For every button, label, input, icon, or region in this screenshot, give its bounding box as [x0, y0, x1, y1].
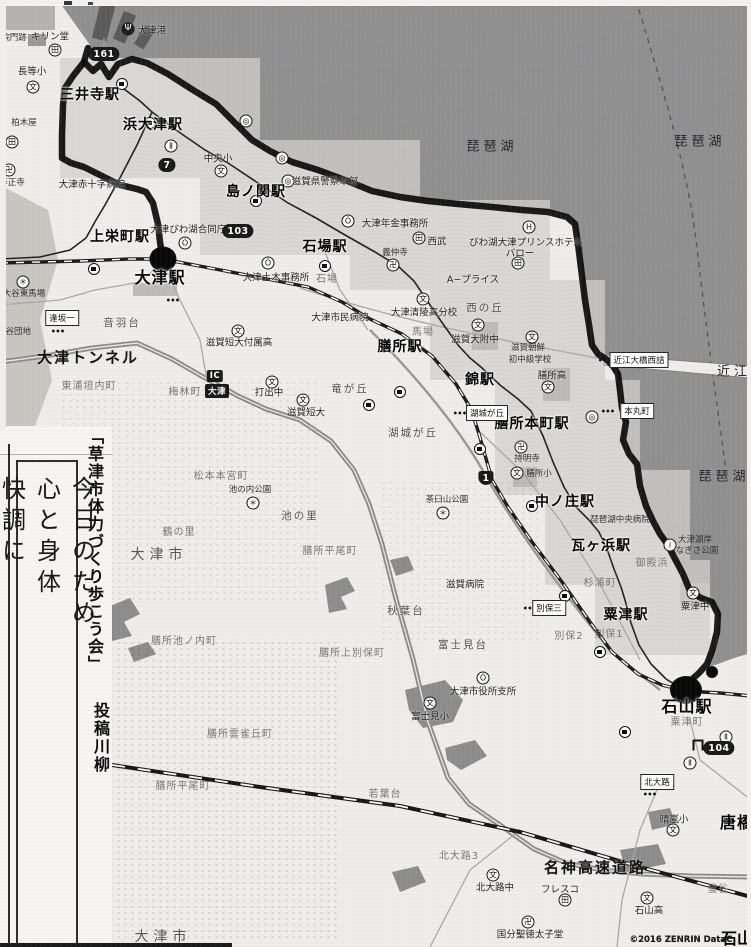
temple-icon: 卍 [387, 259, 400, 272]
route-number-badge: 104 [703, 741, 734, 755]
map-label: 北大路3 [439, 852, 479, 862]
map-label: 若葉台 [369, 790, 402, 800]
map-label: フレスコ [541, 885, 579, 895]
station-marker-icon [594, 646, 606, 658]
station-marker-icon [474, 443, 486, 455]
map-label: 持明寺 [514, 455, 540, 464]
map-label: 粟津町 [671, 718, 704, 728]
boxed-place-label: 近江大橋西詰 [609, 352, 668, 368]
gov-office-icon: Ó [342, 215, 355, 228]
map-label: 梅林町 [169, 388, 202, 398]
map-label: 杉浦町 [584, 579, 617, 589]
map-label: 富士見台 [438, 640, 488, 651]
school-icon: 文 [297, 394, 310, 407]
senryu-poem: 今日のため 心と身体 快調に [0, 476, 100, 655]
map-label: 茶臼山公園 [426, 496, 469, 505]
shrine-icon [693, 740, 704, 751]
map-label: 西の丘 [466, 303, 504, 314]
poi-icon: ◎ [240, 115, 253, 128]
map-label: 晴嵐小 [660, 815, 689, 825]
poem-line: 今日のため [65, 476, 100, 631]
school-icon: 文 [526, 331, 539, 344]
map-label: 池の内公園 [229, 486, 272, 495]
info-icon: i [664, 539, 677, 552]
map-label: 膳所池ノ内町 [151, 637, 217, 647]
school-icon: 文 [232, 325, 245, 338]
map-label: 螢谷 [707, 885, 729, 895]
temple-icon: 卍 [515, 441, 528, 454]
map-label: 松本本宮町 [194, 472, 249, 482]
map-label: 初中級学校 [509, 356, 552, 365]
boxed-place-label: 逢坂一 [45, 310, 79, 326]
station-label: 錦駅 [465, 373, 495, 387]
lake-label: 琵琶湖 [698, 471, 749, 484]
map-label: 中央小 [204, 154, 233, 164]
gov-office-icon: Ó [262, 257, 275, 270]
map-label: 大津市役所支所 [450, 687, 517, 697]
map-label: 打出中 [255, 388, 284, 398]
bus-stop-icon [166, 298, 180, 302]
poem-line: 快調に [0, 476, 30, 631]
map-label: 大津市 [131, 548, 188, 562]
map-label: 別保2 [554, 632, 583, 642]
map-label: 膳所雲雀丘町 [207, 730, 273, 740]
school-icon: 文 [472, 319, 485, 332]
map-labels-layer: 院門跡キリン堂大津港長等小柏木屋等正寺中央小大津赤十字病院大津びわ湖合同庁舎滋賀… [0, 0, 751, 947]
bus-stop-icon [453, 411, 467, 415]
school-icon: 文 [667, 824, 680, 837]
map-label: 別保1 [594, 630, 623, 640]
poi-icon: Ⅱ [165, 140, 178, 153]
station-label: 中ノ庄駅 [535, 495, 595, 509]
station-label: 石山駅 [661, 699, 712, 715]
station-label: 粟津駅 [604, 608, 649, 622]
fold-line [0, 454, 112, 455]
map-label: なぎさ公園 [676, 547, 719, 556]
map-label: 滋賀短大付属高 [206, 338, 273, 348]
school-icon: 文 [424, 697, 437, 710]
copyright-notice: ©2016 ZENRIN DataC [630, 936, 733, 945]
map-label: 滋賀大附中 [451, 335, 499, 345]
scan-edge-line [0, 943, 232, 947]
store-icon: 田 [559, 894, 572, 907]
map-label: 大津湖岸 [678, 536, 712, 545]
map-label: 石場 [316, 275, 338, 285]
map-label: 大津土木事務所 [243, 273, 310, 283]
poi-icon: Ⅱ [684, 757, 697, 770]
station-label: 三井寺駅 [60, 88, 120, 102]
store-icon: 田 [413, 232, 426, 245]
map-label: 大谷東馬場 [3, 290, 46, 299]
school-icon: 文 [27, 81, 40, 94]
map-label: 富士見小 [411, 712, 449, 722]
park-icon: ＊ [247, 497, 260, 510]
school-icon: 文 [641, 892, 654, 905]
map-label: びわ湖大津プリンスホテル [469, 238, 583, 248]
school-icon: 文 [417, 293, 430, 306]
scanned-walking-course-map-page: 院門跡キリン堂大津港長等小柏木屋等正寺中央小大津赤十字病院大津びわ湖合同庁舎滋賀… [0, 0, 751, 947]
station-marker-icon [319, 260, 331, 272]
route-number-badge: 大津 [205, 384, 229, 398]
map-label: 長等小 [18, 67, 47, 77]
poi-icon: ◎ [586, 411, 599, 424]
map-label: 東浦垣内町 [62, 382, 117, 392]
station-label: 膳所駅 [378, 340, 423, 354]
station-label: 石場駅 [303, 240, 348, 254]
map-label: 大津トンネル [37, 351, 139, 366]
route-number-badge: 103 [222, 224, 253, 238]
poem-line: 心と身体 [30, 476, 65, 631]
poem-box: 今日のため 心と身体 快調に [16, 460, 78, 947]
map-label: 滋賀朝鮮 [511, 344, 545, 353]
map-label: 滋賀病院 [446, 580, 484, 590]
station-marker-icon [394, 386, 406, 398]
gov-office-icon: Ó [477, 672, 490, 685]
scan-mark [64, 1, 72, 5]
port-anchor-icon: Ψ [122, 23, 135, 36]
map-label: 膳所小 [526, 470, 552, 479]
senryu-subtitle: 投稿川柳 [88, 702, 112, 774]
map-label: 大津清陵高分校 [391, 308, 458, 318]
map-label: 粟津中 [681, 602, 710, 612]
map-label: 国分聖徳太子堂 [497, 930, 564, 940]
map-label: 馬場 [412, 328, 434, 338]
scan-margin-top [0, 0, 751, 6]
route-number-badge: 7 [158, 158, 175, 172]
bus-stop-icon [51, 329, 65, 333]
route-number-badge: 1 [478, 471, 493, 485]
school-icon: 文 [487, 869, 500, 882]
map-label: 名神高速道路 [544, 861, 646, 876]
map-label: 大津年金事務所 [362, 219, 429, 229]
senryu-sidebar: 「草津市体力づくり歩こう会」 投稿川柳 今日のため 心と身体 快調に [0, 426, 112, 947]
school-icon: 文 [511, 467, 524, 480]
map-label: 北大路中 [476, 883, 514, 893]
boxed-place-label: 湖城が丘 [466, 405, 508, 421]
map-label: 竜が丘 [331, 384, 369, 395]
map-label: 秋葉台 [387, 606, 425, 617]
map-label: 琵琶湖中央病院 [590, 516, 650, 525]
map-label: 膳所平尾町 [303, 547, 358, 557]
map-label: 膳所上別保町 [319, 649, 385, 659]
map-label: バロー [506, 249, 535, 259]
lake-label: 近江 [717, 366, 751, 379]
station-label: 浜大津駅 [123, 118, 183, 132]
school-icon: 文 [542, 381, 555, 394]
bus-stop-icon [601, 409, 615, 413]
map-label: A−プライス [447, 275, 499, 285]
map-label: 西武 [427, 237, 446, 247]
map-label: 義仲寺 [382, 249, 408, 258]
map-label: 滋賀県警察本部 [292, 177, 359, 187]
scan-margin-right [747, 0, 751, 947]
lake-label: 琵琶湖 [466, 141, 517, 154]
school-icon: 文 [687, 587, 700, 600]
map-label: 大津港 [138, 26, 167, 36]
boxed-place-label: 北大路 [640, 774, 674, 790]
map-label: 大津市民病院 [311, 313, 368, 323]
station-label: 瓦ヶ浜駅 [571, 539, 631, 553]
map-label: 御殿浜 [636, 559, 669, 569]
boxed-place-label: 本丸町 [620, 403, 654, 419]
map-label: 池の里 [281, 511, 319, 522]
map-label: 大津赤十字病院 [59, 180, 126, 190]
map-label: 滋賀短大 [287, 408, 325, 418]
gov-office-icon: Ó [179, 237, 192, 250]
boxed-place-label: 別保三 [532, 600, 566, 616]
lake-label: 琵琶湖 [674, 136, 725, 149]
map-label: 音羽台 [103, 318, 141, 329]
station-label: 島ノ関駅 [226, 185, 286, 199]
map-label: 湖城が丘 [388, 428, 438, 439]
station-marker-icon [363, 399, 375, 411]
map-label: 石山高 [635, 906, 664, 916]
map-label: 柏木屋 [11, 119, 37, 128]
route-number-badge: IC [207, 370, 223, 382]
hotel-icon: H [523, 221, 536, 234]
station-label: 上栄町駅 [90, 230, 150, 244]
map-label: 大津市 [135, 930, 192, 944]
school-icon: 文 [215, 165, 228, 178]
station-label: 大津駅 [134, 270, 185, 286]
map-label: 膳所高 [538, 371, 567, 381]
temple-icon: 卍 [522, 916, 535, 929]
store-icon: 田 [49, 44, 62, 57]
scan-mark [88, 2, 93, 5]
store-icon: 田 [6, 136, 19, 149]
station-marker-icon [88, 263, 100, 275]
bus-stop-icon [643, 792, 657, 796]
route-number-badge: 161 [88, 47, 119, 61]
map-label: 膳所平尾町 [156, 782, 211, 792]
poi-icon: ◎ [276, 152, 289, 165]
scan-margin-left [0, 0, 6, 430]
station-marker-icon [619, 726, 631, 738]
poi-icon: ＊ [17, 276, 30, 289]
course-node [706, 666, 718, 678]
map-label: キリン堂 [31, 32, 69, 42]
park-icon: ＊ [437, 507, 450, 520]
map-label: 鶴の里 [163, 528, 196, 538]
